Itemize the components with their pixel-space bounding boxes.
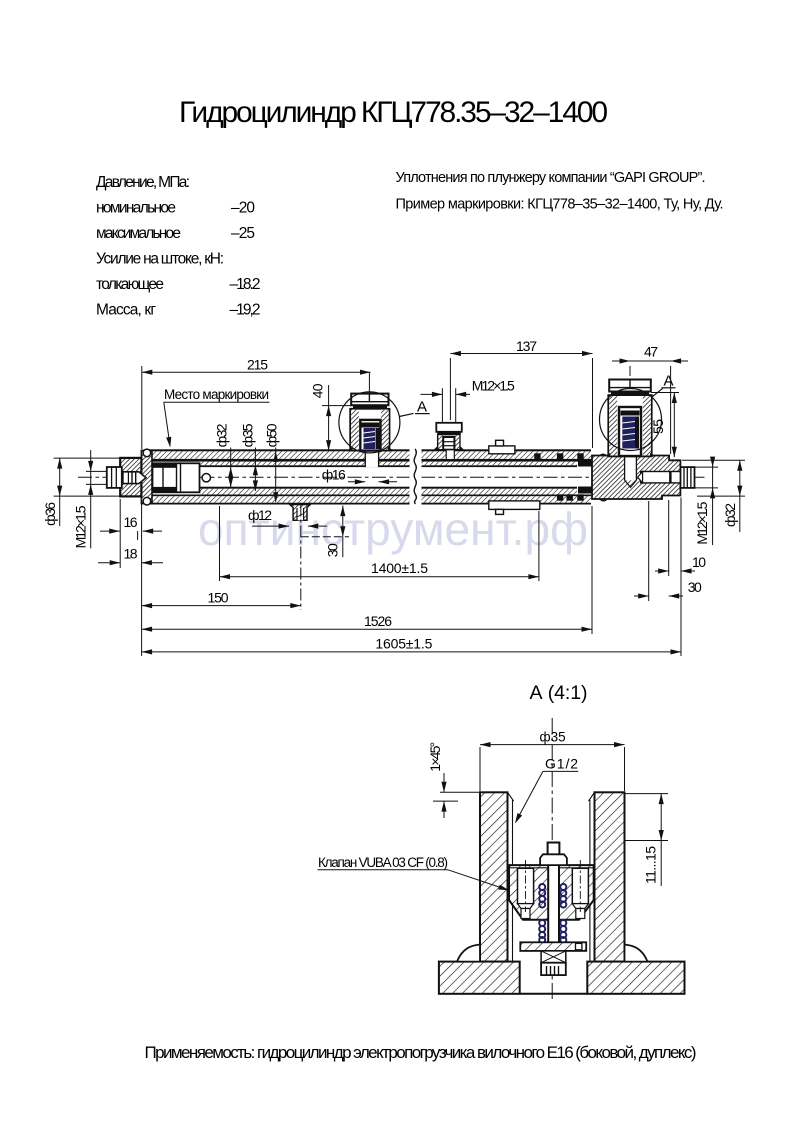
svg-text:М12×1.5: М12×1.5 [472,378,515,394]
svg-text:47: 47 [644,344,658,360]
svg-text:–18.2: –18.2 [230,276,261,293]
svg-text:Усилие на штоке, кН:: Усилие на штоке, кН: [96,251,224,268]
svg-text:10: 10 [692,554,706,570]
svg-text:1605±1.5: 1605±1.5 [375,636,432,652]
svg-text:Место маркировки: Место маркировки [164,387,269,402]
svg-text:Масса, кг: Масса, кг [96,302,156,319]
svg-text:Пример маркировки: КГЦ778–35–3: Пример маркировки: КГЦ778–35–32–1400, Ту… [396,197,724,213]
svg-text:максимальное: максимальное [96,225,181,242]
svg-text:18: 18 [124,546,138,562]
svg-text:толкающее: толкающее [96,276,164,293]
svg-text:–25: –25 [231,225,255,242]
svg-text:–20: –20 [231,200,255,217]
svg-text:40: 40 [310,383,326,398]
svg-text:Гидроцилиндр КГЦ778.35–32–1400: Гидроцилиндр КГЦ778.35–32–1400 [179,96,608,129]
svg-text:А (4:1): А (4:1) [530,682,588,704]
svg-text:М12×1.5: М12×1.5 [694,501,710,544]
svg-text:М12×1.5: М12×1.5 [73,505,89,548]
svg-text:Уплотнения по плунжеру компани: Уплотнения по плунжеру компании “GAPI GR… [396,170,706,186]
svg-text:11...15: 11...15 [643,846,659,884]
svg-text:Применяемость: гидроцилиндр эл: Применяемость: гидроцилиндр электропогру… [145,1043,697,1062]
svg-text:ф36: ф36 [42,502,58,526]
svg-text:ф35: ф35 [239,423,255,447]
svg-text:номинальное: номинальное [96,200,176,217]
svg-text:1×45°: 1×45° [427,742,443,772]
svg-text:Давление, МПа:: Давление, МПа: [96,174,190,191]
svg-text:150: 150 [208,589,229,605]
svg-text:55: 55 [650,419,666,434]
svg-text:–19,2: –19,2 [230,302,261,319]
svg-text:215: 215 [247,357,268,373]
svg-text:ф16: ф16 [322,467,346,483]
svg-text:ф32: ф32 [214,423,230,447]
svg-text:30: 30 [688,579,702,595]
svg-text:А: А [664,373,674,390]
svg-text:30: 30 [325,543,341,557]
svg-text:Клапан VUBA 03 CF (0.8): Клапан VUBA 03 CF (0.8) [318,855,448,870]
svg-text:ф50: ф50 [264,423,280,447]
svg-text:1526: 1526 [364,613,392,629]
svg-text:А: А [417,399,427,416]
svg-text:G1/2: G1/2 [545,756,578,772]
svg-text:1400±1.5: 1400±1.5 [371,560,428,576]
svg-text:137: 137 [516,338,537,354]
svg-text:ф35: ф35 [540,730,566,745]
svg-text:16: 16 [124,514,138,530]
svg-text:ф12: ф12 [248,507,272,523]
svg-text:ф32: ф32 [722,503,738,527]
